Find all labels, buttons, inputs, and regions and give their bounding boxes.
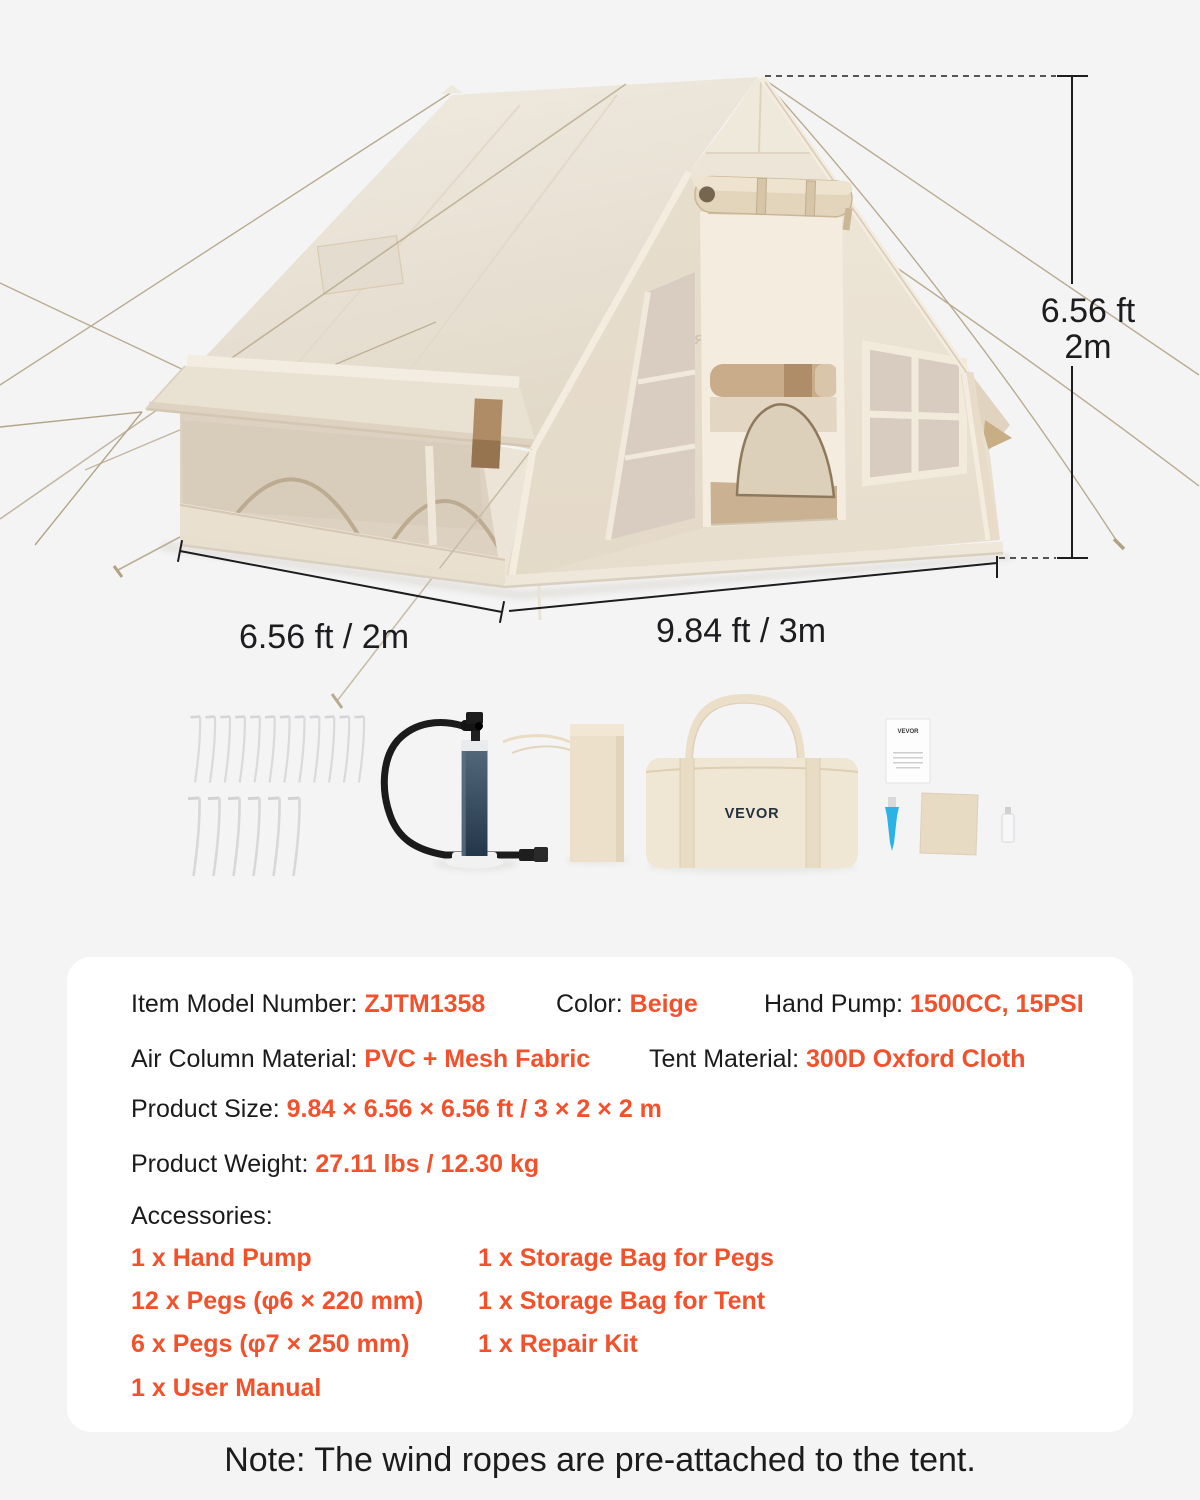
svg-text:VEVOR: VEVOR [897,729,919,735]
svg-text:VEVOR: VEVOR [725,806,780,822]
